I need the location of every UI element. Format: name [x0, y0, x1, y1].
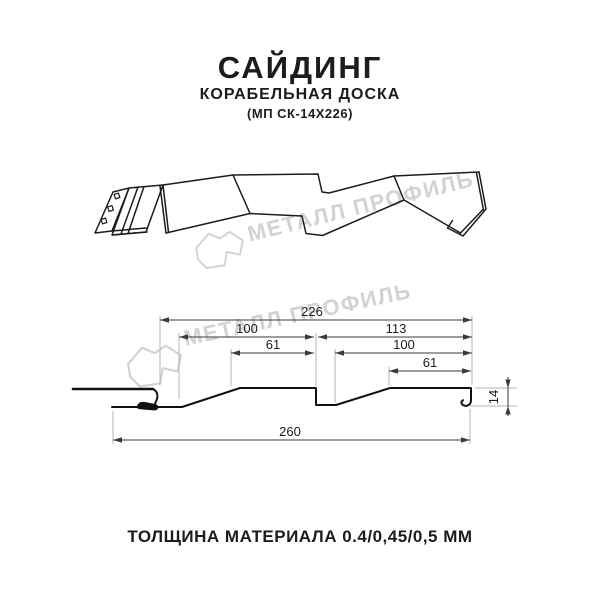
dimension-label: 61	[423, 355, 437, 370]
dimension-label: 100	[393, 337, 415, 352]
dimension-label: 100	[236, 321, 258, 336]
dimension-14: 14	[486, 377, 511, 416]
profile-3d-view	[95, 172, 486, 236]
dimension-label: 14	[486, 390, 501, 404]
technical-drawing: 226 100 113 61	[0, 0, 600, 600]
dimension-100-right: 100	[335, 337, 472, 356]
dimension-100-left: 100	[179, 321, 314, 340]
cross-section-view	[73, 388, 471, 410]
dimension-61-left: 61	[231, 337, 314, 356]
dimension-label: 226	[301, 304, 323, 319]
dimension-label: 260	[279, 424, 301, 439]
dimension-260: 260	[113, 424, 470, 443]
dimension-226: 226	[160, 304, 472, 323]
dimension-61-right: 61	[389, 355, 471, 374]
dimension-label: 113	[386, 321, 407, 336]
dimension-label: 61	[266, 337, 280, 352]
material-thickness-note: ТОЛЩИНА МАТЕРИАЛА 0.4/0,45/0,5 ММ	[0, 527, 600, 547]
dimension-lines: 226 100 113 61	[113, 304, 517, 444]
product-drawing-page: САЙДИНГ КОРАБЕЛЬНАЯ ДОСКА (МП СК-14Х226)…	[0, 0, 600, 600]
